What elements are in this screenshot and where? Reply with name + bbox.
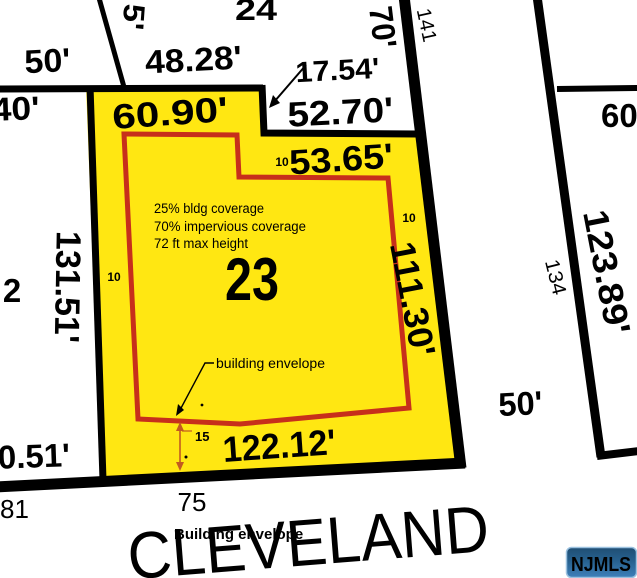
dim-17-54-label: 17.54' xyxy=(295,53,381,89)
lot-134-label: 134 xyxy=(540,257,570,297)
right-block-top-line xyxy=(557,88,637,89)
dim-0-51-label: 0.51' xyxy=(0,436,71,475)
setback-10-left-label: 10 xyxy=(107,270,121,284)
dim-60-90-label: 60.90' xyxy=(111,90,229,137)
rear-lot-line xyxy=(0,88,263,89)
coverage-note: 25% bldg coverage xyxy=(154,201,264,216)
dim-5-label: 5' xyxy=(116,3,151,31)
lot-23-number-label: 23 xyxy=(225,246,279,313)
height-note: 72 ft max height xyxy=(154,236,248,251)
callout-dot xyxy=(201,404,204,407)
envelope-callout-label: building envelope xyxy=(216,355,325,371)
setback-10-right-label: 10 xyxy=(402,211,416,225)
dim-60-label: 60 xyxy=(601,97,637,134)
njmls-badge: NJMLS xyxy=(567,548,637,578)
plat-map: 50' 24 5' 48.28' 70' 141 40' 60.90' 17.5… xyxy=(0,0,637,578)
dim-52-70-label: 52.70' xyxy=(286,90,394,134)
dim-50-top-label: 50' xyxy=(23,41,71,80)
plat-map-page: 50' 24 5' 48.28' 70' 141 40' 60.90' 17.5… xyxy=(0,0,637,578)
right-block-bottom-line xyxy=(597,451,637,456)
dim-70-label: 70' xyxy=(362,4,404,50)
dim-53-65-label: 53.65' xyxy=(288,136,394,182)
lot-141-label: 141 xyxy=(412,6,441,44)
njmls-badge-label: NJMLS xyxy=(571,554,631,576)
setback-10-top-label: 10 xyxy=(275,155,289,169)
lot-24-label: 24 xyxy=(235,0,278,27)
dim-40-label: 40' xyxy=(0,89,40,128)
dim-122-12-label: 122.12' xyxy=(221,421,337,470)
callout-dot xyxy=(185,456,188,459)
setback-15-label: 15 xyxy=(195,429,209,444)
dim-48-28-label: 48.28' xyxy=(144,39,243,81)
lot-81-label: 81 xyxy=(0,494,29,524)
dim-131-51-label: 131.51' xyxy=(47,231,88,344)
lot-2-label: 2 xyxy=(3,272,21,309)
dim-50-right-label: 50' xyxy=(497,384,543,423)
impervious-note: 70% impervious coverage xyxy=(154,219,306,234)
